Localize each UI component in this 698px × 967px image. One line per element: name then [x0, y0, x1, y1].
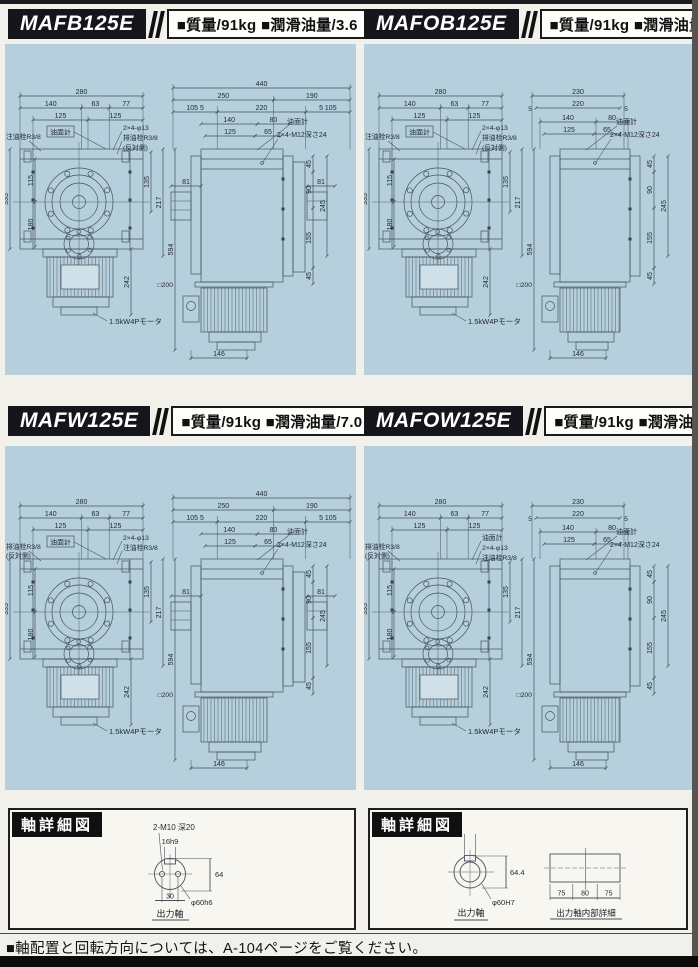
dim-label: φ60H7 [492, 898, 515, 907]
dim-label: 140 [404, 511, 416, 518]
dim-label: 5 105 [319, 515, 337, 522]
header-mafw125e: MAFW125E ■質量/91kg ■潤滑油量/7.0 [8, 406, 372, 436]
dim-label: 90 [306, 596, 313, 604]
dim-label: (反対側) [482, 143, 507, 152]
dim-label: 190 [306, 503, 318, 510]
dim-label: 105 5 [186, 105, 204, 112]
dim-label: 排油栓R3/8 [482, 133, 517, 142]
technical-drawing-mafow125e: 28014063771251253351151801352175942421.5… [364, 446, 698, 777]
dim-label: 242 [483, 686, 490, 698]
dim-label: 335 [5, 193, 10, 205]
dim-label: □200 [158, 692, 174, 699]
dim-label: 135 [503, 586, 510, 598]
dim-label: 5 105 [319, 105, 337, 112]
dim-label: (反対側) [365, 551, 390, 560]
dim-label: 180 [387, 219, 394, 231]
dim-label: 5 [624, 106, 628, 113]
dim-label: 90 [647, 596, 654, 604]
dim-label: 125 [110, 523, 122, 530]
dim-label: 注油栓R3/8 [123, 543, 158, 552]
dim-label: 440 [256, 491, 268, 498]
dim-label: 125 [563, 537, 575, 544]
dim-label: (反対側) [123, 143, 148, 152]
dim-label: 125 [414, 113, 426, 120]
side-view-drawing: 440250190105 52205 10514080125658181油面計2… [158, 81, 352, 360]
dim-label: 220 [572, 511, 584, 518]
dim-label: 63 [450, 101, 458, 108]
dim-label: 250 [217, 503, 229, 510]
dim-label: 146 [213, 351, 225, 358]
model-name: MAFB125E [8, 9, 146, 39]
dim-label: 115 [28, 175, 35, 186]
dim-label: 135 [144, 586, 151, 598]
dim-label: 440 [256, 81, 268, 88]
shaft-detail-box-right: 軸詳細図 [368, 808, 688, 930]
dim-label: 64.4 [510, 868, 525, 877]
scan-edge-right [692, 0, 698, 967]
dim-label: 排油栓R3/8 [365, 542, 400, 551]
header-separator [528, 406, 539, 436]
dim-label: 180 [28, 629, 35, 641]
front-view-drawing: 28014063771251253351151801352175942421.5… [5, 89, 177, 351]
model-name: MAFOW125E [364, 406, 523, 436]
dim-label: 125 [55, 113, 67, 120]
dim-label: 63 [91, 511, 99, 518]
dim-label: 140 [562, 525, 574, 532]
dim-label: 16h9 [162, 837, 179, 846]
dim-label: 105 5 [186, 515, 204, 522]
header-separator [155, 406, 166, 436]
dim-label: 2×4-φ13 [123, 535, 149, 542]
technical-drawing-mafob125e: 28014063771251253351151801352175942421.5… [364, 44, 698, 375]
dim-label: 45 [306, 682, 313, 690]
scan-edge-top [0, 0, 698, 4]
dim-label: 2-M10 深20 [153, 823, 195, 832]
dim-label: □200 [517, 692, 533, 699]
dim-label: 242 [124, 686, 131, 698]
dim-label: 77 [481, 511, 489, 518]
dim-label: 135 [503, 176, 510, 188]
dim-label: 80 [608, 525, 616, 532]
technical-drawing-mafb125e: 28014063771251253351151801352175942421.5… [5, 44, 356, 375]
dim-label: 250 [217, 93, 229, 100]
dim-label: 油面計 [616, 527, 637, 536]
dim-label: 5 [528, 516, 532, 523]
header-mafow125e: MAFOW125E ■質量/91kg ■潤滑油量/7.2 [364, 406, 698, 436]
dim-label: 注油栓R3/8 [6, 132, 41, 141]
dim-label: 77 [481, 101, 489, 108]
dim-label: 140 [45, 101, 57, 108]
dim-label: 335 [5, 603, 10, 615]
dim-label: 217 [156, 197, 163, 209]
dim-label: 90 [306, 186, 313, 194]
spec-box: ■質量/91kg ■潤滑油量/3.8 [540, 9, 698, 39]
dim-label: 242 [483, 276, 490, 288]
dim-label: 2×4-M12深さ24 [610, 540, 660, 549]
front-view-drawing: 28014063771251253351151801352175942421.5… [5, 499, 177, 761]
dim-label: 油面計 [409, 128, 430, 137]
dim-label: 217 [515, 607, 522, 619]
spec-box: ■質量/91kg ■潤滑油量/3.6 [167, 9, 368, 39]
dim-label: 77 [122, 511, 130, 518]
side-view-drawing: 230220551408012565油面計2×4-M12深さ2445901554… [517, 89, 670, 360]
dim-label: 155 [306, 642, 313, 654]
shaft-detail-title: 軸詳細図 [12, 812, 102, 837]
dim-label: 245 [320, 610, 327, 622]
drawing-panel-mafob125e: 28014063771251253351151801352175942421.5… [364, 44, 698, 375]
dim-label: 2×4-φ13 [482, 545, 508, 552]
dim-label: 155 [647, 232, 654, 244]
dim-label: 2×4-M12深さ24 [277, 130, 327, 139]
dim-label: 77 [122, 101, 130, 108]
dim-label: 220 [256, 105, 268, 112]
shaft-detail-title: 軸詳細図 [372, 812, 462, 837]
dim-label: 220 [572, 101, 584, 108]
shaft-detail-box-left: 軸詳細図 2-M10 深20 16h9 [8, 808, 356, 930]
dim-label: 115 [387, 585, 394, 596]
dim-label: 油面計 [482, 533, 503, 542]
dim-label: 245 [661, 200, 668, 212]
header-mafob125e: MAFOB125E ■質量/91kg ■潤滑油量/3.8 [364, 9, 698, 39]
dim-label: 115 [387, 175, 394, 186]
dim-label: 63 [450, 511, 458, 518]
dim-label: 280 [435, 89, 447, 96]
shaft-caption: 出力軸内部詳細 [556, 908, 616, 918]
header-separator [524, 9, 535, 39]
dim-label: 140 [562, 115, 574, 122]
dim-label: 油面計 [50, 128, 71, 137]
dim-label: 注油栓R3/8 [365, 132, 400, 141]
dim-label: 1.5kW4Pモータ [109, 727, 162, 736]
dim-label: 5 [624, 516, 628, 523]
scan-edge-bottom [0, 956, 698, 967]
side-view-drawing: 230220551408012565油面計2×4-M12深さ2445901554… [517, 499, 670, 770]
dim-label: 2×4-φ13 [123, 125, 149, 132]
dim-label: 80 [581, 891, 589, 898]
dim-label: 5 [528, 106, 532, 113]
dim-label: 146 [572, 351, 584, 358]
model-name: MAFW125E [8, 406, 150, 436]
dim-label: 81 [317, 589, 325, 596]
dim-label: 90 [647, 186, 654, 194]
dim-label: 125 [414, 523, 426, 530]
dim-label: 594 [527, 654, 534, 666]
dim-label: 125 [563, 127, 575, 134]
dim-label: 135 [144, 176, 151, 188]
dim-label: 45 [647, 160, 654, 168]
dim-label: 146 [572, 761, 584, 768]
dim-label: 230 [572, 499, 584, 506]
dim-label: φ60h6 [191, 898, 213, 907]
spec-box: ■質量/91kg ■潤滑油量/7.0 [171, 406, 372, 436]
header-mafb125e: MAFB125E ■質量/91kg ■潤滑油量/3.6 [8, 9, 368, 39]
dim-label: (反対側) [6, 551, 31, 560]
technical-drawing-mafw125e: 28014063771251253351151801352175942421.5… [5, 446, 356, 777]
dim-label: 217 [156, 607, 163, 619]
dim-label: 280 [435, 499, 447, 506]
catalog-page: MAFB125E ■質量/91kg ■潤滑油量/3.6 MAFOB125E ■質… [0, 0, 698, 967]
dim-label: 140 [45, 511, 57, 518]
shaft-caption: 出力軸 [457, 907, 484, 918]
dim-label: 排油栓R3/8 [6, 542, 41, 551]
spec-box: ■質量/91kg ■潤滑油量/7.2 [544, 406, 698, 436]
dim-label: 180 [387, 629, 394, 641]
dim-label: 594 [168, 654, 175, 666]
dim-label: 64 [215, 870, 223, 879]
dim-label: 125 [469, 523, 481, 530]
dim-label: 180 [28, 219, 35, 231]
shaft-caption: 出力軸 [156, 908, 183, 919]
dim-label: 80 [608, 115, 616, 122]
dim-label: 75 [605, 891, 613, 898]
dim-label: 245 [320, 200, 327, 212]
dim-label: 115 [28, 585, 35, 596]
dim-label: 1.5kW4Pモータ [468, 727, 521, 736]
dim-label: 125 [469, 113, 481, 120]
dim-label: 230 [572, 89, 584, 96]
dim-label: 81 [182, 179, 190, 186]
dim-label: 45 [306, 570, 313, 578]
dim-label: 2×4-φ13 [482, 125, 508, 132]
dim-label: 75 [558, 891, 566, 898]
dim-label: 油面計 [287, 117, 308, 126]
dim-label: 2×4-M12深さ24 [277, 540, 327, 549]
dim-label: 65 [264, 129, 272, 136]
dim-label: □200 [517, 282, 533, 289]
dim-label: 140 [404, 101, 416, 108]
dim-label: 245 [661, 610, 668, 622]
dim-label: 594 [168, 244, 175, 256]
dim-label: 125 [224, 129, 236, 136]
dim-label: 220 [256, 515, 268, 522]
dim-label: 81 [317, 179, 325, 186]
dim-label: 335 [364, 603, 369, 615]
dim-label: 排油栓R3/8 [123, 133, 158, 142]
dim-label: 30 [166, 894, 174, 901]
side-view-drawing: 440250190105 52205 10514080125658181油面計2… [158, 491, 352, 770]
dim-label: 155 [647, 642, 654, 654]
dim-label: 油面計 [616, 117, 637, 126]
dim-label: 45 [647, 272, 654, 280]
dim-label: □200 [158, 282, 174, 289]
dim-label: 190 [306, 93, 318, 100]
dim-label: 63 [91, 101, 99, 108]
dim-label: 油面計 [287, 527, 308, 536]
front-view-drawing: 28014063771251253351151801352175942421.5… [364, 89, 536, 351]
footer-rule [0, 933, 698, 934]
dim-label: 油面計 [50, 538, 71, 547]
dim-label: 155 [306, 232, 313, 244]
dim-label: 242 [124, 276, 131, 288]
dim-label: 注油栓R3/8 [482, 553, 517, 562]
dim-label: 146 [213, 761, 225, 768]
dim-label: 217 [515, 197, 522, 209]
dim-label: 125 [224, 539, 236, 546]
dim-label: 1.5kW4Pモータ [468, 317, 521, 326]
drawing-panel-mafb125e: 28014063771251253351151801352175942421.5… [5, 44, 356, 375]
header-separator [151, 9, 162, 39]
drawing-panel-mafow125e: 28014063771251253351151801352175942421.5… [364, 446, 698, 790]
dim-label: 280 [76, 89, 88, 96]
dim-label: 125 [110, 113, 122, 120]
dim-label: 45 [306, 160, 313, 168]
front-view-drawing: 28014063771251253351151801352175942421.5… [364, 499, 536, 761]
model-name: MAFOB125E [364, 9, 519, 39]
dim-label: 125 [55, 523, 67, 530]
dim-label: 2×4-M12深さ24 [610, 130, 660, 139]
dim-label: 45 [306, 272, 313, 280]
dim-label: 45 [647, 570, 654, 578]
dim-label: 81 [182, 589, 190, 596]
dim-label: 280 [76, 499, 88, 506]
footer-note: ■軸配置と回転方向については、A-104ページをご覧ください。 [6, 937, 427, 958]
dim-label: 140 [223, 117, 235, 124]
dim-label: 594 [527, 244, 534, 256]
dim-label: 45 [647, 682, 654, 690]
dim-label: 65 [264, 539, 272, 546]
dim-label: 335 [364, 193, 369, 205]
dim-label: 1.5kW4Pモータ [109, 317, 162, 326]
dim-label: 140 [223, 527, 235, 534]
drawing-panel-mafw125e: 28014063771251253351151801352175942421.5… [5, 446, 356, 790]
